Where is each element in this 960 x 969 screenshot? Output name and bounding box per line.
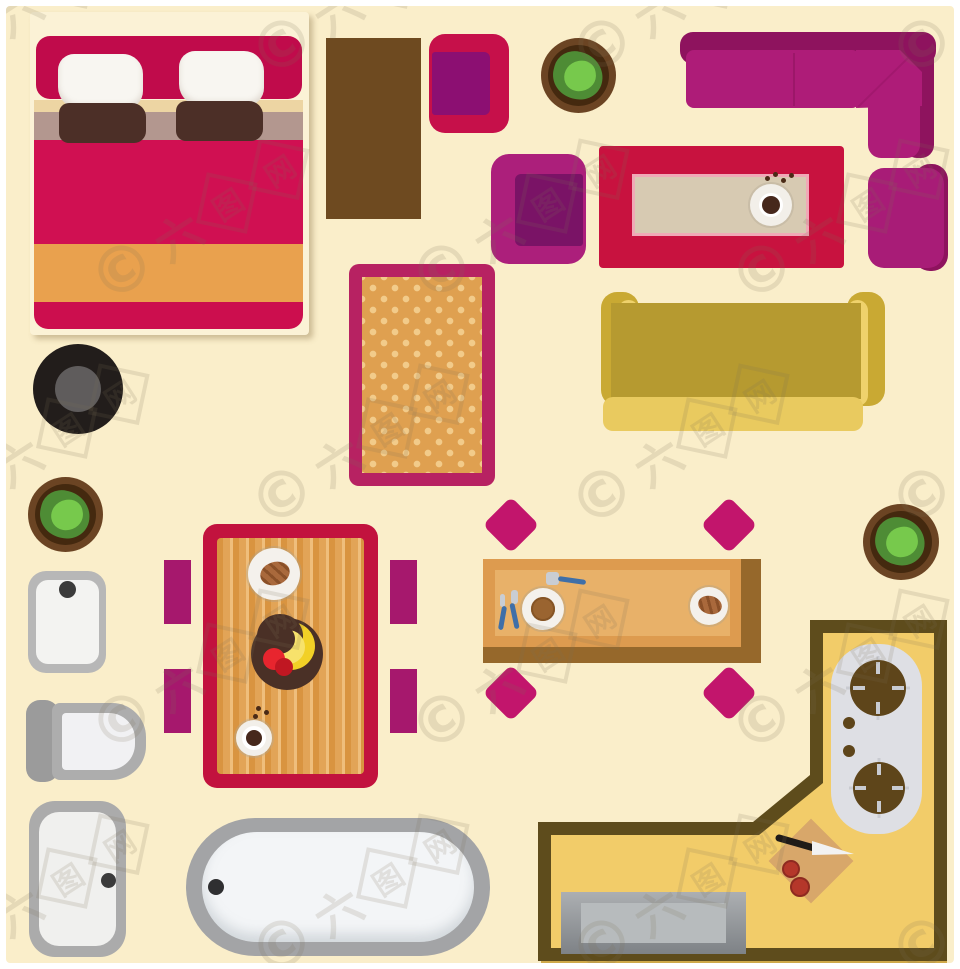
diamond-chair xyxy=(701,497,758,554)
bed-footer xyxy=(34,302,303,329)
armchair-red-purple xyxy=(429,34,509,133)
watermark-boxed-char: 图 xyxy=(356,6,418,9)
rug-starred-field xyxy=(362,277,482,473)
tomato-icon xyxy=(783,861,799,877)
stove-knob-icon xyxy=(843,717,855,729)
watermark-copyright-icon: © xyxy=(6,447,10,544)
pillow-white-right xyxy=(179,51,264,106)
pillow-brown-right xyxy=(176,101,263,141)
dining-chair xyxy=(164,560,191,624)
coffee-icon xyxy=(246,730,262,746)
dining-chair xyxy=(164,669,191,733)
toilet-bowl-inner xyxy=(62,713,135,770)
coffee-bean-icon xyxy=(253,714,258,719)
olive-sofa-seat-front xyxy=(603,397,863,431)
armchair-seat xyxy=(432,52,490,115)
knife-icon xyxy=(500,594,505,607)
watermark-char: 六 xyxy=(940,6,954,50)
kitchen-counter xyxy=(531,611,956,969)
potted-plant-left xyxy=(28,477,103,552)
diamond-chair xyxy=(483,497,540,554)
shower-drain-icon xyxy=(101,873,116,888)
stove-knob-icon xyxy=(843,745,855,757)
watermark-copyright-icon: © xyxy=(6,897,10,963)
potted-plant-right xyxy=(863,504,939,580)
watermark-char: 六 xyxy=(620,420,695,500)
coffee-bean-icon xyxy=(256,706,261,711)
olive-sofa-body xyxy=(611,303,861,399)
watermark-copyright-icon: © xyxy=(556,447,650,544)
watermark-copyright-icon: © xyxy=(6,6,10,94)
corner-sofa xyxy=(676,28,938,162)
potted-plant-top xyxy=(541,38,616,113)
armchair-magenta xyxy=(491,154,586,264)
coffee-bean-icon xyxy=(773,172,778,177)
coffee-icon xyxy=(762,196,780,214)
coffee-table xyxy=(599,146,844,268)
dining-chair xyxy=(390,669,417,733)
pillow-white-left xyxy=(58,54,143,109)
watermark-boxed-char: 图 xyxy=(676,6,738,9)
tomato-icon xyxy=(791,878,809,896)
watermark-char: 六 xyxy=(940,420,954,500)
dining-chair xyxy=(390,560,417,624)
round-stool-top xyxy=(55,366,101,412)
bathtub-drain-icon xyxy=(208,879,224,895)
pillow-brown-left xyxy=(59,103,146,143)
bed-blanket-orange-stripe xyxy=(34,244,303,302)
armchair-seat xyxy=(515,174,583,246)
kitchen-sink-basin xyxy=(581,903,726,943)
fruit-bowl xyxy=(251,618,323,690)
bathtub-inner xyxy=(202,832,474,942)
washbasin-tap-icon xyxy=(59,581,76,598)
coffee-bean-icon xyxy=(765,176,770,181)
fork-icon xyxy=(511,590,518,604)
coffee-bean-icon xyxy=(264,710,269,715)
bed-blanket xyxy=(34,140,303,244)
coffee-bean-icon xyxy=(781,178,786,183)
armchair-with-backrest xyxy=(868,168,944,268)
brown-side-table xyxy=(326,38,421,219)
watermark-boxed-char: 图 xyxy=(36,6,98,9)
apple-icon xyxy=(275,658,293,676)
coffee-bean-icon xyxy=(789,173,794,178)
floorplan-canvas: ©六图网©六图网©六图网©六图网©六图网©六图网©六图网©六图网©六图网©六图网… xyxy=(0,0,960,969)
